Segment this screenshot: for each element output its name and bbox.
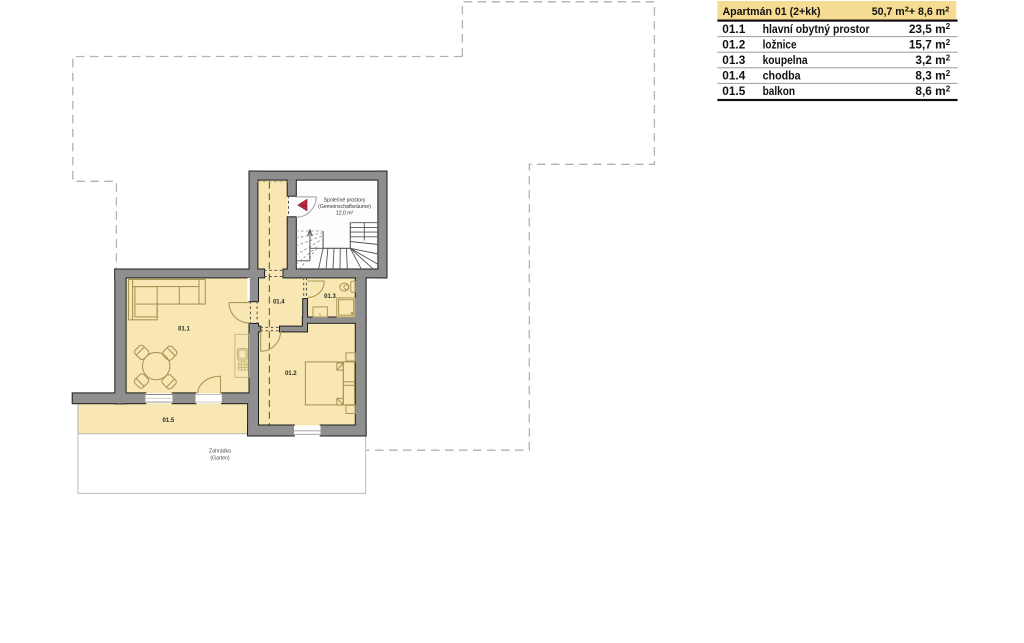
svg-text:(Garten): (Garten) <box>210 456 230 462</box>
svg-text:01.2: 01.2 <box>722 37 745 51</box>
svg-text:8,6 m: 8,6 m <box>915 84 945 98</box>
svg-text:01.5: 01.5 <box>722 84 745 98</box>
svg-text:3,2 m: 3,2 m <box>915 53 945 67</box>
svg-text:ložnice: ložnice <box>763 37 797 51</box>
svg-text:2: 2 <box>946 38 951 47</box>
svg-text:2: 2 <box>946 69 951 78</box>
svg-text:hlavní obytný prostor: hlavní obytný prostor <box>763 22 870 36</box>
svg-text:50,7 m2+ 8,6 m2: 50,7 m2+ 8,6 m2 <box>872 5 950 18</box>
svg-text:2: 2 <box>946 85 951 94</box>
svg-text:Apartmán 01 (2+kk): Apartmán 01 (2+kk) <box>723 6 821 18</box>
svg-text:2: 2 <box>946 22 951 31</box>
svg-text:01.3: 01.3 <box>324 294 336 300</box>
svg-text:15,7 m: 15,7 m <box>909 37 946 51</box>
svg-text:8,3 m: 8,3 m <box>915 69 945 83</box>
svg-text:chodba: chodba <box>763 69 801 83</box>
svg-text:01.2: 01.2 <box>285 371 297 377</box>
svg-text:balkon: balkon <box>763 84 796 98</box>
svg-text:01.4: 01.4 <box>722 69 745 83</box>
svg-text:01: 01 <box>302 203 307 208</box>
svg-text:2: 2 <box>946 53 951 62</box>
svg-text:12,0 m²: 12,0 m² <box>336 210 354 216</box>
svg-text:Společné prostory: Společné prostory <box>324 198 366 204</box>
svg-text:01.1: 01.1 <box>722 22 745 36</box>
svg-text:(Gemeinschaftsräume): (Gemeinschaftsräume) <box>318 204 371 210</box>
svg-text:01.5: 01.5 <box>163 418 175 424</box>
svg-text:Zahrádka: Zahrádka <box>209 449 231 455</box>
svg-text:01.4: 01.4 <box>273 300 285 306</box>
svg-text:23,5 m: 23,5 m <box>909 22 946 36</box>
svg-text:01.1: 01.1 <box>178 327 190 333</box>
svg-text:01.3: 01.3 <box>722 53 745 67</box>
svg-text:koupelna: koupelna <box>763 53 808 67</box>
